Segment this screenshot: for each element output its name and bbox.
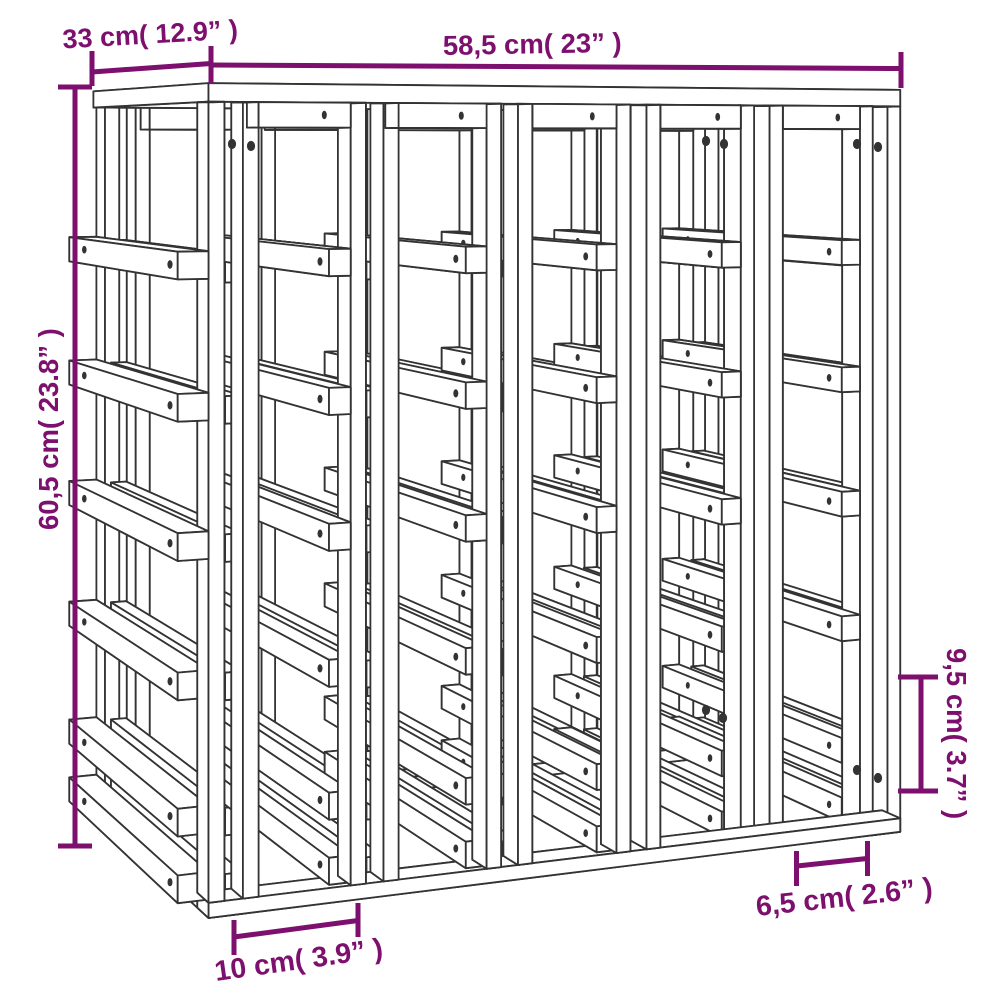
svg-text:58,5 cm( 23” ): 58,5 cm( 23” ) (443, 27, 622, 61)
svg-text:9,5 cm( 3.7” ): 9,5 cm( 3.7” ) (941, 648, 972, 819)
svg-text:60,5 cm( 23.8” ): 60,5 cm( 23.8” ) (33, 328, 64, 530)
